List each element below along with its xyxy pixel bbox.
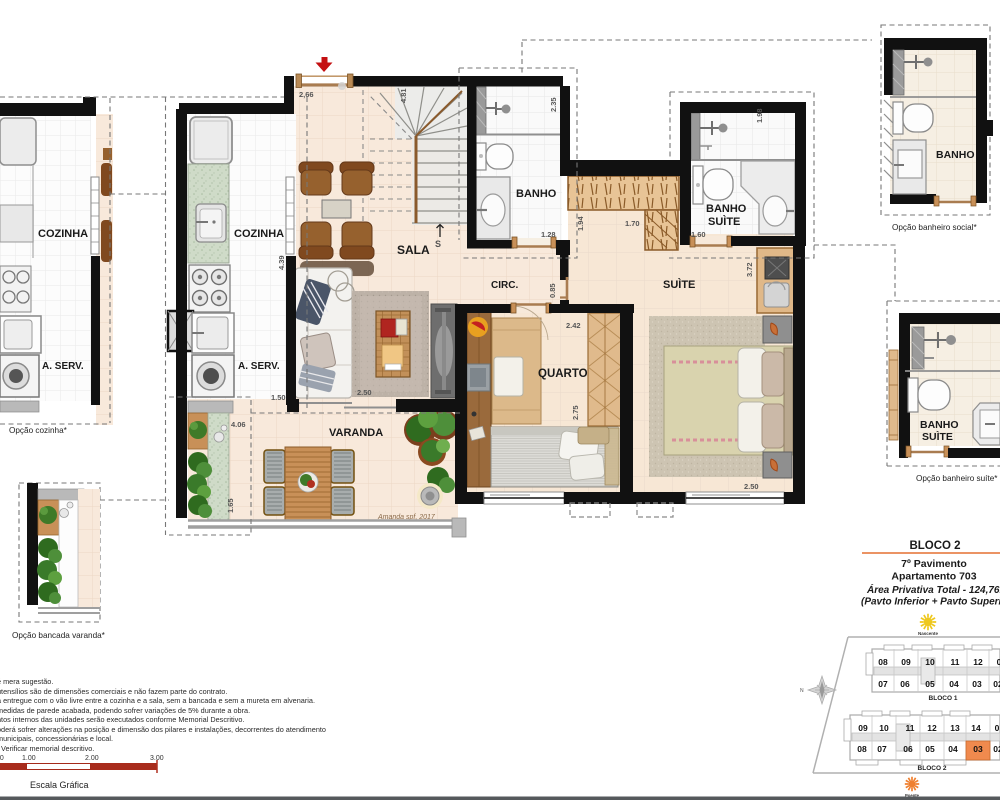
svg-text:05: 05 [925,679,935,689]
svg-text:A. SERV.: A. SERV. [238,361,280,372]
svg-text:2.50: 2.50 [357,388,372,397]
svg-text:1.60: 1.60 [691,230,706,239]
svg-text:50: 50 [0,755,4,762]
svg-text:BANHOSUÌTE: BANHOSUÌTE [920,419,959,443]
svg-text:ntos internos das unidades ser: ntos internos das unidades serão executa… [0,715,244,724]
svg-text:12: 12 [973,657,983,667]
svg-text:SALA: SALA [397,243,430,257]
svg-text:09: 09 [901,657,911,667]
svg-text:2.75: 2.75 [571,405,580,420]
svg-text:2.42: 2.42 [566,321,581,330]
svg-text:utensílios são de dimensões co: utensílios são de dimensões comerciais e… [0,687,227,696]
svg-text:4.06: 4.06 [231,420,246,429]
svg-text:Apartamento 703: Apartamento 703 [891,571,976,583]
svg-text:1.50: 1.50 [271,393,286,402]
svg-text:02: 02 [993,679,1000,689]
svg-text:Opção cozinha*: Opção cozinha* [9,426,68,435]
svg-text:13: 13 [950,723,960,733]
svg-text:0.85: 0.85 [548,283,557,298]
svg-text:1.70: 1.70 [625,219,640,228]
svg-text:SUÌTE: SUÌTE [663,278,695,291]
svg-text:03: 03 [972,679,982,689]
svg-text:BANHO: BANHO [516,188,557,200]
svg-text:Escala Gráfica: Escala Gráfica [30,780,89,790]
svg-text:oderá sofrer alterações na pos: oderá sofrer alterações na posição e dim… [0,725,326,734]
svg-text:2.35: 2.35 [549,97,558,112]
svg-text:1.28: 1.28 [541,230,556,239]
svg-text:11: 11 [906,723,915,733]
svg-text:4.39: 4.39 [277,255,286,270]
svg-text:04: 04 [949,679,959,689]
svg-text:QUARTO: QUARTO [538,368,588,380]
svg-text:2.00: 2.00 [85,755,99,762]
svg-text:08: 08 [878,657,888,667]
svg-text:10: 10 [925,657,935,667]
svg-text:2,66: 2,66 [299,90,314,99]
svg-text:0: 0 [995,723,1000,733]
svg-text:Opção banheiro social*: Opção banheiro social* [892,223,977,232]
svg-text:10: 10 [879,723,889,733]
svg-text:CIRC.: CIRC. [491,280,518,291]
svg-text:é mera sugestão.: é mera sugestão. [0,677,53,686]
svg-text:2.50: 2.50 [744,482,759,491]
svg-text:(Pavto Inferior + Pavto Superi: (Pavto Inferior + Pavto Superior) [861,597,1000,608]
svg-text:BLOCO 2: BLOCO 2 [909,540,960,552]
svg-text:á entregue com o vão livre ent: á entregue com o vão livre entre a cozin… [0,696,315,705]
svg-text:11: 11 [951,657,960,667]
svg-text:VARANDA: VARANDA [329,427,383,439]
svg-text:07: 07 [877,744,887,754]
svg-text:municipais, concessionárias e: municipais, concessionárias e local. [0,734,113,743]
svg-text:09: 09 [858,723,868,733]
svg-text:02: 02 [993,744,1000,754]
svg-text:N: N [800,688,804,694]
svg-text:COZINHA: COZINHA [234,228,284,240]
svg-text:12: 12 [927,723,937,733]
svg-text:S: S [435,239,441,249]
svg-text:BLOCO 2: BLOCO 2 [918,765,947,772]
svg-text:0: 0 [997,657,1000,667]
svg-text:A. SERV.: A. SERV. [42,361,84,372]
svg-text:Opção banheiro suíte*: Opção banheiro suíte* [916,474,998,483]
svg-text:04: 04 [948,744,958,754]
svg-text:06: 06 [903,744,913,754]
svg-text:Área Privativa Total - 124,76m: Área Privativa Total - 124,76m² [866,583,1000,596]
svg-text:05: 05 [925,744,935,754]
svg-text:COZINHA: COZINHA [38,228,88,240]
svg-text:1.98: 1.98 [755,108,764,123]
svg-text:1.94: 1.94 [576,216,585,231]
svg-text:14: 14 [971,723,981,733]
svg-text:BANHO: BANHO [936,149,975,161]
svg-text:03: 03 [973,744,983,754]
svg-text:4.81: 4.81 [399,88,408,103]
svg-text:Opção bancada varanda*: Opção bancada varanda* [12,631,106,640]
svg-text:BLOCO 1: BLOCO 1 [929,695,958,702]
svg-text:medidas de parede acabada, pod: medidas de parede acabada, podendo sofre… [0,706,250,715]
svg-text:06: 06 [900,679,910,689]
svg-text:08: 08 [857,744,867,754]
svg-text:7º Pavimento: 7º Pavimento [901,558,967,570]
svg-text:1.65: 1.65 [226,498,235,513]
svg-text:07: 07 [878,679,888,689]
svg-text:3.72: 3.72 [745,262,754,277]
svg-text:Nascente: Nascente [918,631,939,636]
svg-text:. Verificar memorial descritiv: . Verificar memorial descritivo. [0,744,94,753]
svg-text:1.00: 1.00 [22,755,36,762]
